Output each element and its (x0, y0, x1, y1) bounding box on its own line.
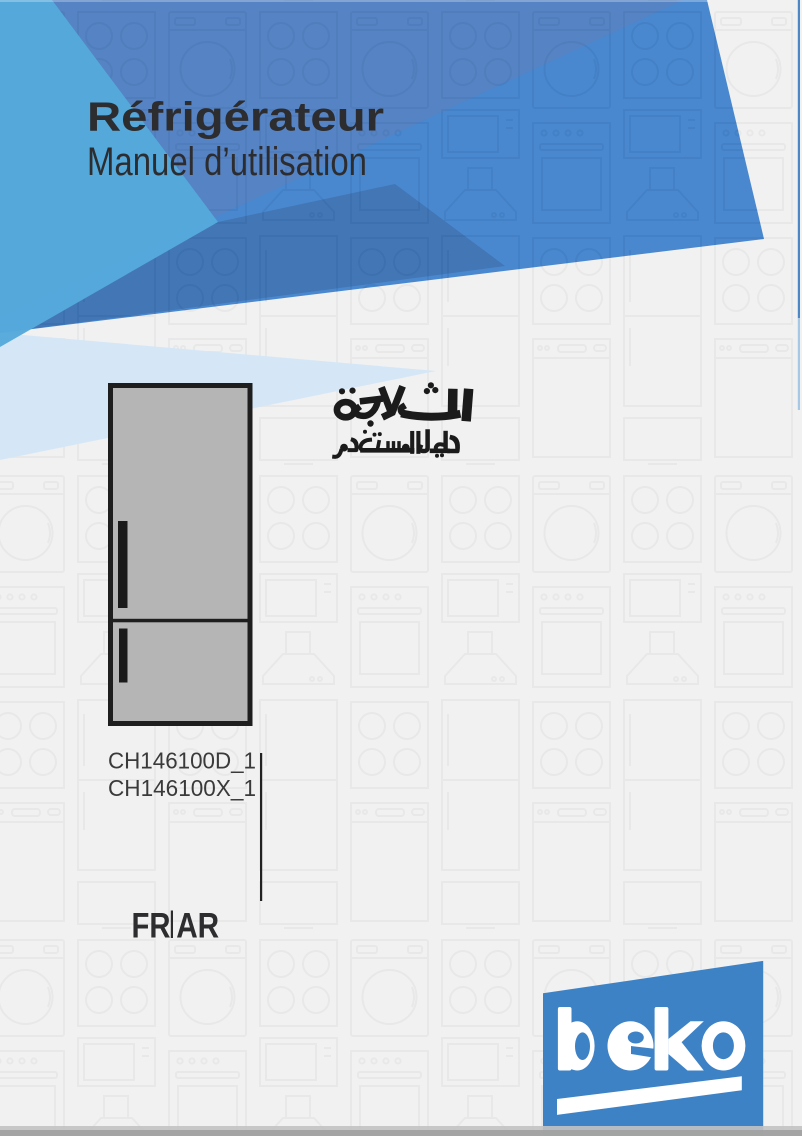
svg-text:AR: AR (176, 907, 219, 946)
svg-text:FR: FR (132, 907, 171, 946)
svg-text:Réfrigérateur: Réfrigérateur (87, 94, 384, 140)
svg-text:Manuel d’utilisation: Manuel d’utilisation (87, 140, 367, 184)
svg-text:CH146100D_1: CH146100D_1 (108, 748, 256, 774)
svg-text:CH146100X_1: CH146100X_1 (108, 775, 256, 801)
